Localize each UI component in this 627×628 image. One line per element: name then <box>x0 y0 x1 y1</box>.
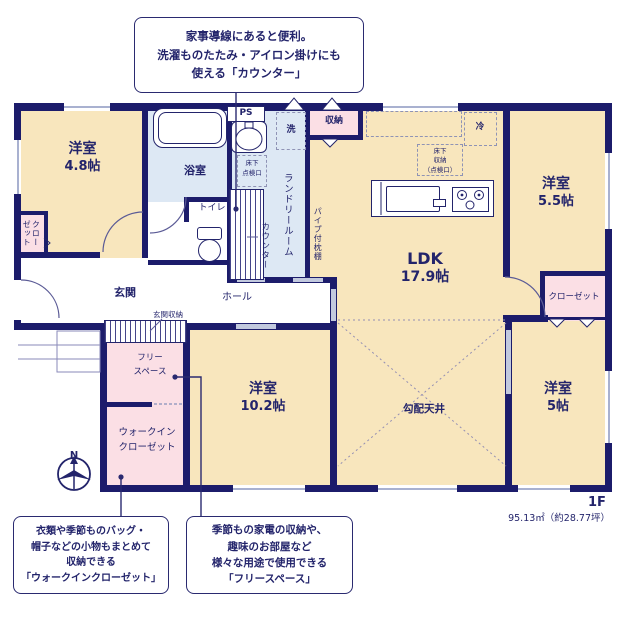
underfloor-line: 床下 <box>417 147 463 156</box>
room-name: 洋室 <box>520 176 592 194</box>
callout-free-space: 季節もの家電の収納や、 趣味のお部屋など 様々な用途で使用できる 「フリースペー… <box>186 516 353 594</box>
callout-line: 季節もの家電の収納や、 <box>187 522 352 538</box>
room-size: 10.2帖 <box>213 399 313 415</box>
closet48-door-mark <box>44 238 50 248</box>
wic-line: ウォークイン <box>106 425 188 440</box>
burner-dot <box>461 194 464 197</box>
label-bedroom-55: 洋室 5.5帖 <box>520 176 592 210</box>
callout-walk-in-closet: 衣類や季節ものバッグ・ 帽子などの小物もまとめて 収納できる 「ウォークインクロ… <box>13 516 169 594</box>
wic-line: クローゼット <box>106 440 188 455</box>
callout-line: 衣類や季節ものバッグ・ <box>14 524 168 540</box>
room-name: LDK <box>375 249 475 269</box>
room-name: 洋室 <box>30 141 135 159</box>
porch-step <box>57 331 100 372</box>
vent-triangle-icon <box>322 98 342 110</box>
label-counter: カウンター <box>259 222 269 277</box>
floor-label: 1F <box>588 495 614 511</box>
counter-leader-dot <box>233 206 238 211</box>
label-refrigerator: 冷 <box>473 122 487 133</box>
floor-plan-canvas: N 洋室 4.8帖 クローゼット 浴室 PS 洗 床下 点検口 トイレ ランドリ… <box>0 0 627 628</box>
bedroom48-door-arc <box>103 212 143 252</box>
label-underfloor-access: 床下 点検口 <box>236 159 268 179</box>
callout-line: 様々な用途で使用できる <box>187 555 352 571</box>
burner-icon <box>466 201 474 209</box>
underfloor-line: 点検口 <box>236 169 268 179</box>
label-ps: PS <box>227 108 265 119</box>
label-toilet: トイレ <box>194 203 230 214</box>
floor-area: 95.13㎡（約28.77坪） <box>430 513 610 525</box>
burner-dot <box>478 194 481 197</box>
label-bedroom-48: 洋室 4.8帖 <box>30 141 135 175</box>
label-ldk: LDK 17.9帖 <box>375 249 475 287</box>
room-size: 17.9帖 <box>375 269 475 287</box>
label-bedroom-5: 洋室 5帖 <box>522 381 594 415</box>
entrance-door-arc <box>21 280 59 318</box>
underfloor-line: 収納 <box>417 156 463 165</box>
underfloor-line: 床下 <box>236 159 268 169</box>
label-walk-in-closet: ウォークイン クローゼット <box>106 425 188 455</box>
vent-triangle-icon <box>284 98 304 110</box>
free-space-line: フリー <box>122 352 178 366</box>
basin-tap <box>245 122 253 128</box>
storage-door-mark <box>322 139 338 147</box>
label-hall: ホール <box>215 292 259 305</box>
callout-line: 使える「カウンター」 <box>135 64 363 82</box>
label-pipe-shelf: パイプ付枕棚 <box>313 207 322 269</box>
callout-counter: 家事導線にあると便利。 洗濯ものたたみ・アイロン掛けにも 使える「カウンター」 <box>134 17 364 93</box>
label-bedroom-102: 洋室 10.2帖 <box>213 381 313 415</box>
underfloor-line: （点検口） <box>417 166 463 175</box>
label-free-space: フリー スペース <box>122 352 178 379</box>
room-size: 4.8帖 <box>30 159 135 175</box>
callout-line: 収納できる <box>14 555 168 571</box>
callout-line: 帽子などの小物もまとめて <box>14 540 168 556</box>
room-size: 5帖 <box>522 399 594 415</box>
label-bathroom: 浴室 <box>170 164 220 178</box>
basin-oval <box>236 128 262 150</box>
room-name: 洋室 <box>213 381 313 399</box>
callout-line: 洗濯ものたたみ・アイロン掛けにも <box>135 46 363 64</box>
washroom-door-arc <box>150 197 186 233</box>
room-size: 5.5帖 <box>520 194 592 210</box>
callout-line: 趣味のお部屋など <box>187 539 352 555</box>
closet-door-mark <box>549 319 565 327</box>
label-underfloor-storage: 床下 収納 （点検口） <box>417 147 463 175</box>
wic-leader-dot <box>118 474 123 479</box>
callout-line: 家事導線にあると便利。 <box>135 27 363 45</box>
label-closet-55: クローゼット <box>545 292 603 303</box>
label-washer: 洗 <box>284 125 298 136</box>
label-entrance: 玄関 <box>103 286 147 300</box>
entrance-storage-tick <box>150 319 162 331</box>
callout-line: 「ウォークインクローゼット」 <box>14 571 168 587</box>
label-closet-48: クローゼット <box>22 220 40 252</box>
label-storage: 収納 <box>314 116 354 127</box>
free-space-line: スペース <box>122 366 178 380</box>
compass-north-label: N <box>70 450 78 461</box>
compass-icon: N <box>57 450 91 490</box>
room-name: 洋室 <box>522 381 594 399</box>
closet-door-mark <box>579 319 595 327</box>
label-entrance-storage: 玄関収納 <box>146 310 190 319</box>
callout-line: 「フリースペース」 <box>187 571 352 587</box>
label-sloped-ceiling: 勾配天井 <box>394 403 454 416</box>
bedroom55-door-arc <box>505 277 545 317</box>
label-laundry-room: ランドリールーム <box>281 173 292 268</box>
